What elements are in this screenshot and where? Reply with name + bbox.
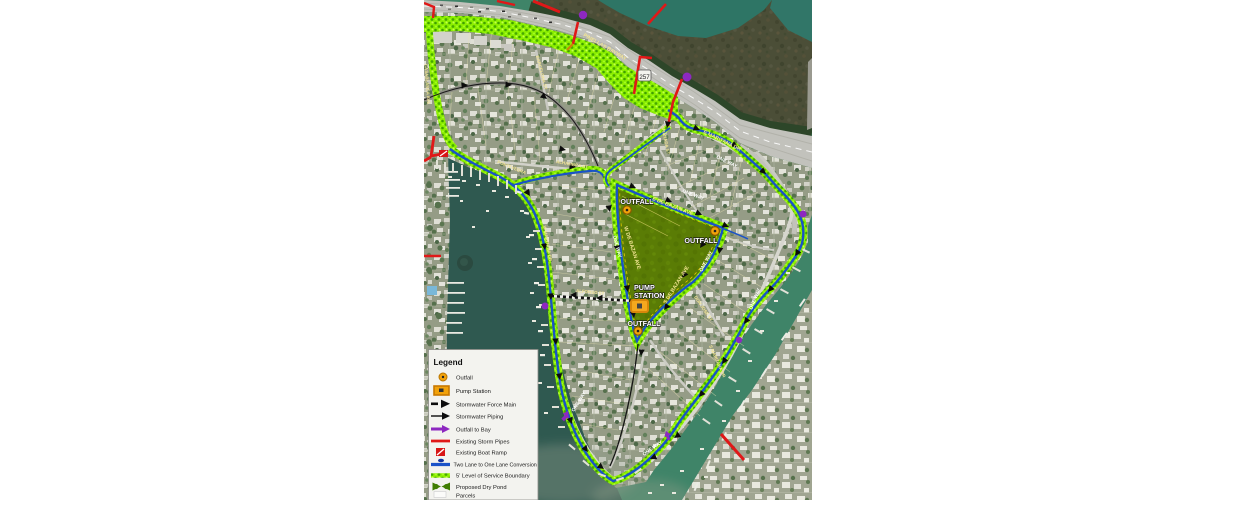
svg-text:5' Level of Service Boundary: 5' Level of Service Boundary [456,474,530,480]
svg-text:257: 257 [639,74,650,81]
svg-text:OUTFALL: OUTFALL [627,319,661,328]
svg-text:Proposed Dry Pond: Proposed Dry Pond [456,485,507,491]
svg-text:Parcels: Parcels [456,494,475,500]
svg-text:OUTFALL: OUTFALL [684,236,718,245]
svg-text:STATION: STATION [634,291,664,300]
svg-text:Stormwater Piping: Stormwater Piping [456,415,503,421]
svg-text:Outfall: Outfall [456,376,473,382]
svg-text:Existing Storm Pipes: Existing Storm Pipes [456,440,510,446]
svg-text:Legend: Legend [434,358,463,367]
svg-text:Outfall to Bay: Outfall to Bay [456,428,491,434]
svg-text:Stormwater Force Main: Stormwater Force Main [456,403,516,409]
svg-text:Two Lane to One Lane Conversio: Two Lane to One Lane Conversion [454,463,537,469]
svg-text:Pump Station: Pump Station [456,389,491,395]
svg-text:Existing Boat Ramp: Existing Boat Ramp [456,451,507,457]
svg-text:OUTFALL: OUTFALL [620,197,654,206]
